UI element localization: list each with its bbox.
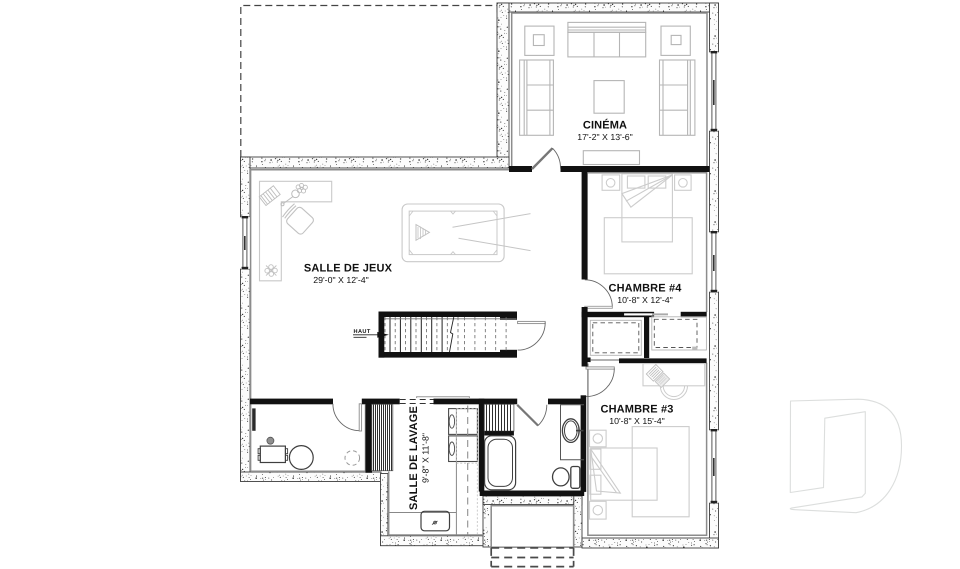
svg-text:10'-8" X 15'-4": 10'-8" X 15'-4" [609, 416, 665, 426]
svg-text:29'-0" X 12'-4": 29'-0" X 12'-4" [313, 275, 369, 285]
svg-text:10'-8" X 12'-4": 10'-8" X 12'-4" [617, 295, 673, 305]
svg-text:HAUT: HAUT [353, 329, 370, 335]
svg-text:CHAMBRE #4: CHAMBRE #4 [608, 283, 682, 295]
svg-text:17'-2" X 13'-6": 17'-2" X 13'-6" [577, 132, 633, 142]
svg-text:9'-8" X 11'-8": 9'-8" X 11'-8" [420, 433, 430, 483]
svg-text:SALLE DE LAVAGE: SALLE DE LAVAGE [408, 406, 420, 510]
svg-text:CINÉMA: CINÉMA [583, 119, 627, 132]
svg-text:SALLE DE JEUX: SALLE DE JEUX [304, 262, 393, 274]
svg-text:CHAMBRE #3: CHAMBRE #3 [600, 404, 673, 416]
